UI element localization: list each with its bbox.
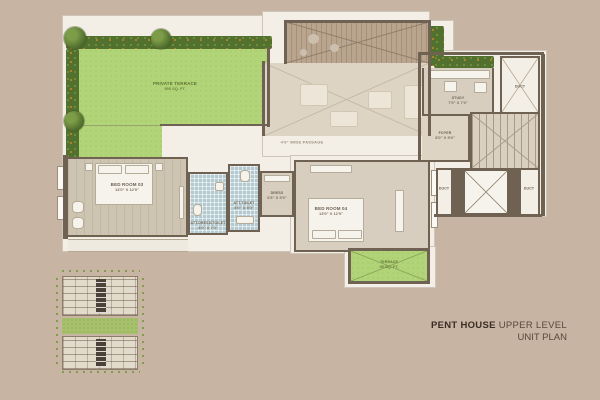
room-size: 8'0" X 5'0"	[435, 136, 454, 141]
wall	[541, 54, 545, 216]
plan-title: PENT HOUSEUPPER LEVEL	[431, 320, 567, 332]
wc-icon	[193, 204, 202, 216]
cross-hatch-icon	[465, 171, 507, 213]
att-dress-toilet-label: ATT.DRESS/TOILET 8'0" X 7'0"	[191, 221, 226, 231]
att-toilet	[228, 164, 260, 232]
pillow	[125, 165, 149, 174]
deck-area	[286, 22, 429, 63]
key-plan-trees	[60, 268, 140, 275]
pillow	[98, 165, 122, 174]
foyer-label: FOYER 8'0" X 5'0"	[435, 131, 454, 141]
room-size: 8'0" X 5'0"	[233, 206, 254, 211]
hedge-left	[66, 49, 79, 161]
pillow	[312, 230, 336, 239]
duct-shaft	[519, 168, 540, 216]
duct-label-left: DUCT	[439, 187, 449, 192]
chair	[474, 82, 487, 93]
washbasin-icon	[215, 182, 224, 191]
desk	[428, 70, 490, 79]
bed-room-03-label: BED ROOM 03 13'0" X 12'0"	[111, 181, 144, 192]
room-size: 6'6" X 5'0"	[267, 196, 286, 201]
deck-planter	[300, 49, 307, 56]
duct-name: DUCT	[524, 187, 534, 192]
key-plan-building	[62, 336, 138, 370]
wall	[267, 47, 270, 127]
duct-name: DUCT	[515, 85, 525, 90]
wall	[453, 168, 462, 216]
balcony-ledge	[68, 239, 188, 252]
wall	[63, 155, 68, 239]
wall	[510, 168, 519, 216]
tree-icon	[151, 29, 171, 49]
room-size: 95 SQ. FT.	[379, 265, 398, 270]
wall	[160, 124, 270, 126]
tree-icon	[64, 111, 84, 131]
pillow	[338, 230, 362, 239]
wall	[434, 214, 542, 217]
wc-icon	[240, 170, 250, 182]
duct-label-right: DUCT	[524, 187, 534, 192]
key-plan	[56, 266, 144, 374]
room-size: 950 SQ. FT.	[153, 86, 197, 91]
dresser	[310, 165, 352, 173]
lift-shaft	[462, 168, 510, 216]
wall	[418, 52, 544, 55]
duct-name: DUCT	[439, 187, 449, 192]
private-terrace-area-lower	[79, 49, 162, 162]
title-block: PENT HOUSEUPPER LEVEL UNIT PLAN	[431, 320, 567, 344]
terrace-label: TERRACE 95 SQ. FT.	[379, 260, 398, 270]
wall	[428, 20, 431, 136]
study-room	[422, 68, 494, 116]
wall	[285, 20, 431, 23]
wardrobe	[264, 175, 290, 182]
coffee-table	[368, 91, 392, 109]
deck-planter	[330, 44, 339, 52]
key-plan-core	[96, 339, 106, 367]
kitchen-counter	[330, 111, 358, 127]
sofa	[404, 85, 424, 119]
project-name: PENT HOUSE	[431, 320, 496, 331]
room-size: 13'0" X 12'0"	[315, 211, 348, 216]
stair-direction-icon	[472, 114, 538, 168]
bed-room-03	[68, 157, 188, 237]
att-toilet-label: ATT.TOILET 8'0" X 5'0"	[233, 201, 254, 211]
passage-label: 4'6" WIDE PASSAGE	[281, 140, 324, 145]
planter-strip	[434, 56, 494, 68]
washbasin-icon	[236, 216, 254, 224]
dress-label: DRESS 6'6" X 5'0"	[267, 191, 286, 201]
duct-shaft	[436, 168, 453, 216]
room-size: 7'9" X 7'0"	[448, 101, 467, 106]
cross-hatch-icon	[286, 22, 429, 63]
chair	[72, 201, 84, 213]
key-plan-garden	[62, 318, 138, 334]
wall	[418, 52, 421, 162]
wall	[284, 20, 287, 64]
key-plan-core	[96, 279, 106, 313]
plan-subtitle: UNIT PLAN	[431, 332, 567, 344]
nightstand	[85, 163, 93, 171]
chair	[72, 217, 84, 229]
room-size: 13'0" X 12'0"	[111, 187, 144, 192]
key-plan-trees	[54, 276, 61, 368]
living-void-area	[264, 63, 429, 136]
dining-table	[300, 84, 328, 106]
key-plan-building	[62, 276, 138, 316]
level-name: UPPER LEVEL	[499, 320, 567, 331]
study-label: STUDY 7'9" X 7'0"	[448, 96, 467, 106]
key-plan-trees	[60, 369, 140, 376]
room-size: 8'0" X 7'0"	[191, 226, 226, 231]
deck-planter	[308, 34, 319, 44]
nightstand	[155, 163, 163, 171]
wardrobe	[395, 190, 404, 232]
tv-unit	[179, 186, 184, 219]
private-terrace-label: PRIVATE TERRACE 950 SQ. FT.	[153, 80, 197, 91]
floor-plan: PRIVATE TERRACE 950 SQ. FT. 4'6" WIDE PA…	[0, 0, 600, 400]
chair	[444, 81, 457, 92]
tree-icon	[64, 27, 86, 49]
duct-label-top: DUCT	[515, 85, 525, 90]
key-plan-trees	[140, 276, 147, 368]
staircase	[470, 112, 540, 168]
bed-room-04-label: BED ROOM 04 13'0" X 12'0"	[315, 205, 348, 216]
